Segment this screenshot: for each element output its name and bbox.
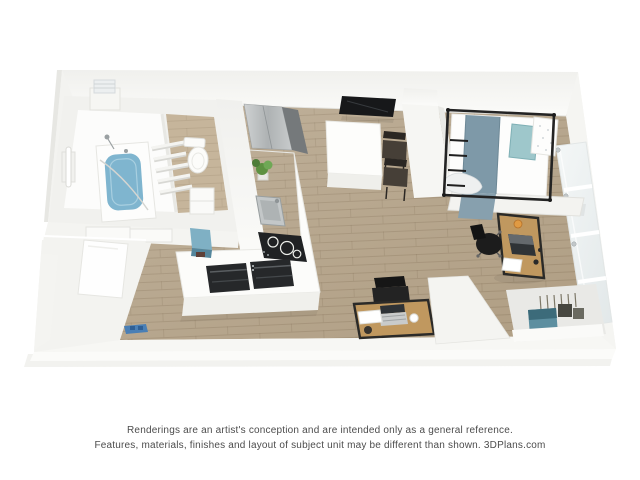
- kitchen-sink: [256, 196, 285, 226]
- shower-head-icon: [105, 135, 110, 140]
- disclaimer-caption: Renderings are an artist's conception an…: [0, 423, 640, 453]
- towel-stack: [94, 80, 115, 93]
- brand-name: 3DPlans.com: [484, 440, 546, 451]
- towel-bar: [66, 147, 71, 187]
- desk-lamp-icon: [514, 220, 522, 228]
- dining-table: [326, 121, 382, 176]
- caption-line-2: Features, materials, finishes and layout…: [0, 438, 640, 453]
- hall-stool: [190, 228, 212, 258]
- laptop-bottom-desk: [379, 304, 408, 326]
- toilet-tank: [184, 137, 206, 147]
- bathtub: [104, 153, 144, 211]
- bathroom: [44, 80, 246, 248]
- cooktop: [258, 232, 307, 262]
- entry-door-open: [78, 240, 128, 298]
- office-chair-bottom: [372, 276, 410, 304]
- gray-bag: [573, 308, 584, 319]
- tub-faucet-icon: [124, 149, 128, 153]
- mug-icon: [410, 314, 418, 322]
- dining-table-face: [327, 173, 382, 190]
- paper-sheet: [502, 258, 522, 272]
- floor-plan-rendering: [0, 0, 640, 480]
- paper-sheet-2: [358, 310, 382, 324]
- dark-bag: [558, 304, 572, 317]
- floor-plan-page: Renderings are an artist's conception an…: [0, 0, 640, 480]
- caption-line-1: Renderings are an artist's conception an…: [0, 423, 640, 438]
- sink-faucet-icon: [275, 199, 279, 203]
